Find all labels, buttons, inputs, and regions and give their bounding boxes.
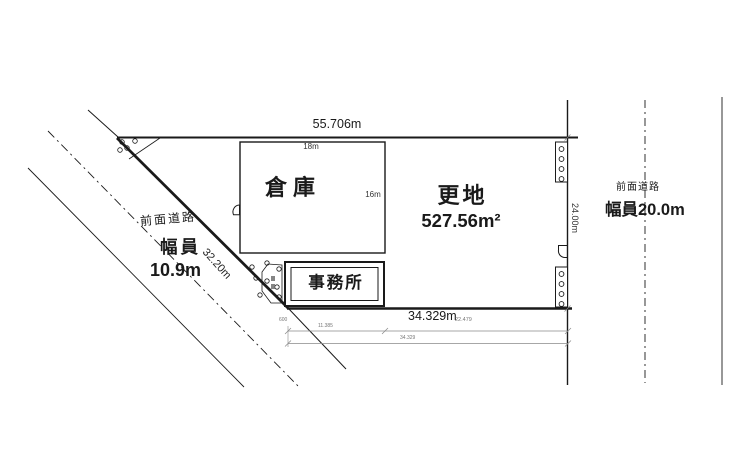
warehouse-width-label: 18m — [296, 143, 326, 151]
office-label: 事務所 — [293, 275, 377, 292]
west-road-far-edge — [28, 168, 244, 387]
south-dimension-label: 34.329m — [408, 310, 498, 323]
warehouse-depth-label: 16m — [360, 191, 386, 199]
warehouse-label: 倉庫 — [249, 177, 331, 199]
east-dimension-label: 24.00m — [570, 203, 579, 233]
survey-segment1-label: 11.385 — [318, 324, 333, 329]
west-road-width-label: 幅員 — [160, 239, 201, 257]
corner-planting-area — [118, 138, 160, 159]
east-road-width-label: 幅員20.0m — [605, 202, 685, 219]
west-road-width-value: 10.9m — [150, 261, 201, 279]
vacant-land-label: 更地 — [421, 185, 501, 207]
north-dimension-label: 55.706m — [297, 118, 377, 131]
survey-offset-label: 600 — [279, 318, 287, 323]
site-plan-drawing — [0, 0, 750, 458]
east-road-lines — [645, 97, 722, 385]
site-plan: 55.706m 18m 倉庫 16m 更地 527.56m² 事務所 前面道路 … — [0, 0, 750, 458]
east-gate-icon — [558, 246, 567, 258]
east-road-name-label: 前面道路 — [616, 183, 660, 193]
vacant-land-area-label: 527.56m² — [411, 212, 511, 231]
survey-total-label: 34.329 — [400, 336, 415, 341]
entrance-planting-area — [250, 261, 282, 303]
warehouse-door-icon — [233, 205, 240, 215]
east-edge-fixtures — [556, 142, 568, 307]
survey-segment2-label: 22.479 — [455, 318, 472, 324]
